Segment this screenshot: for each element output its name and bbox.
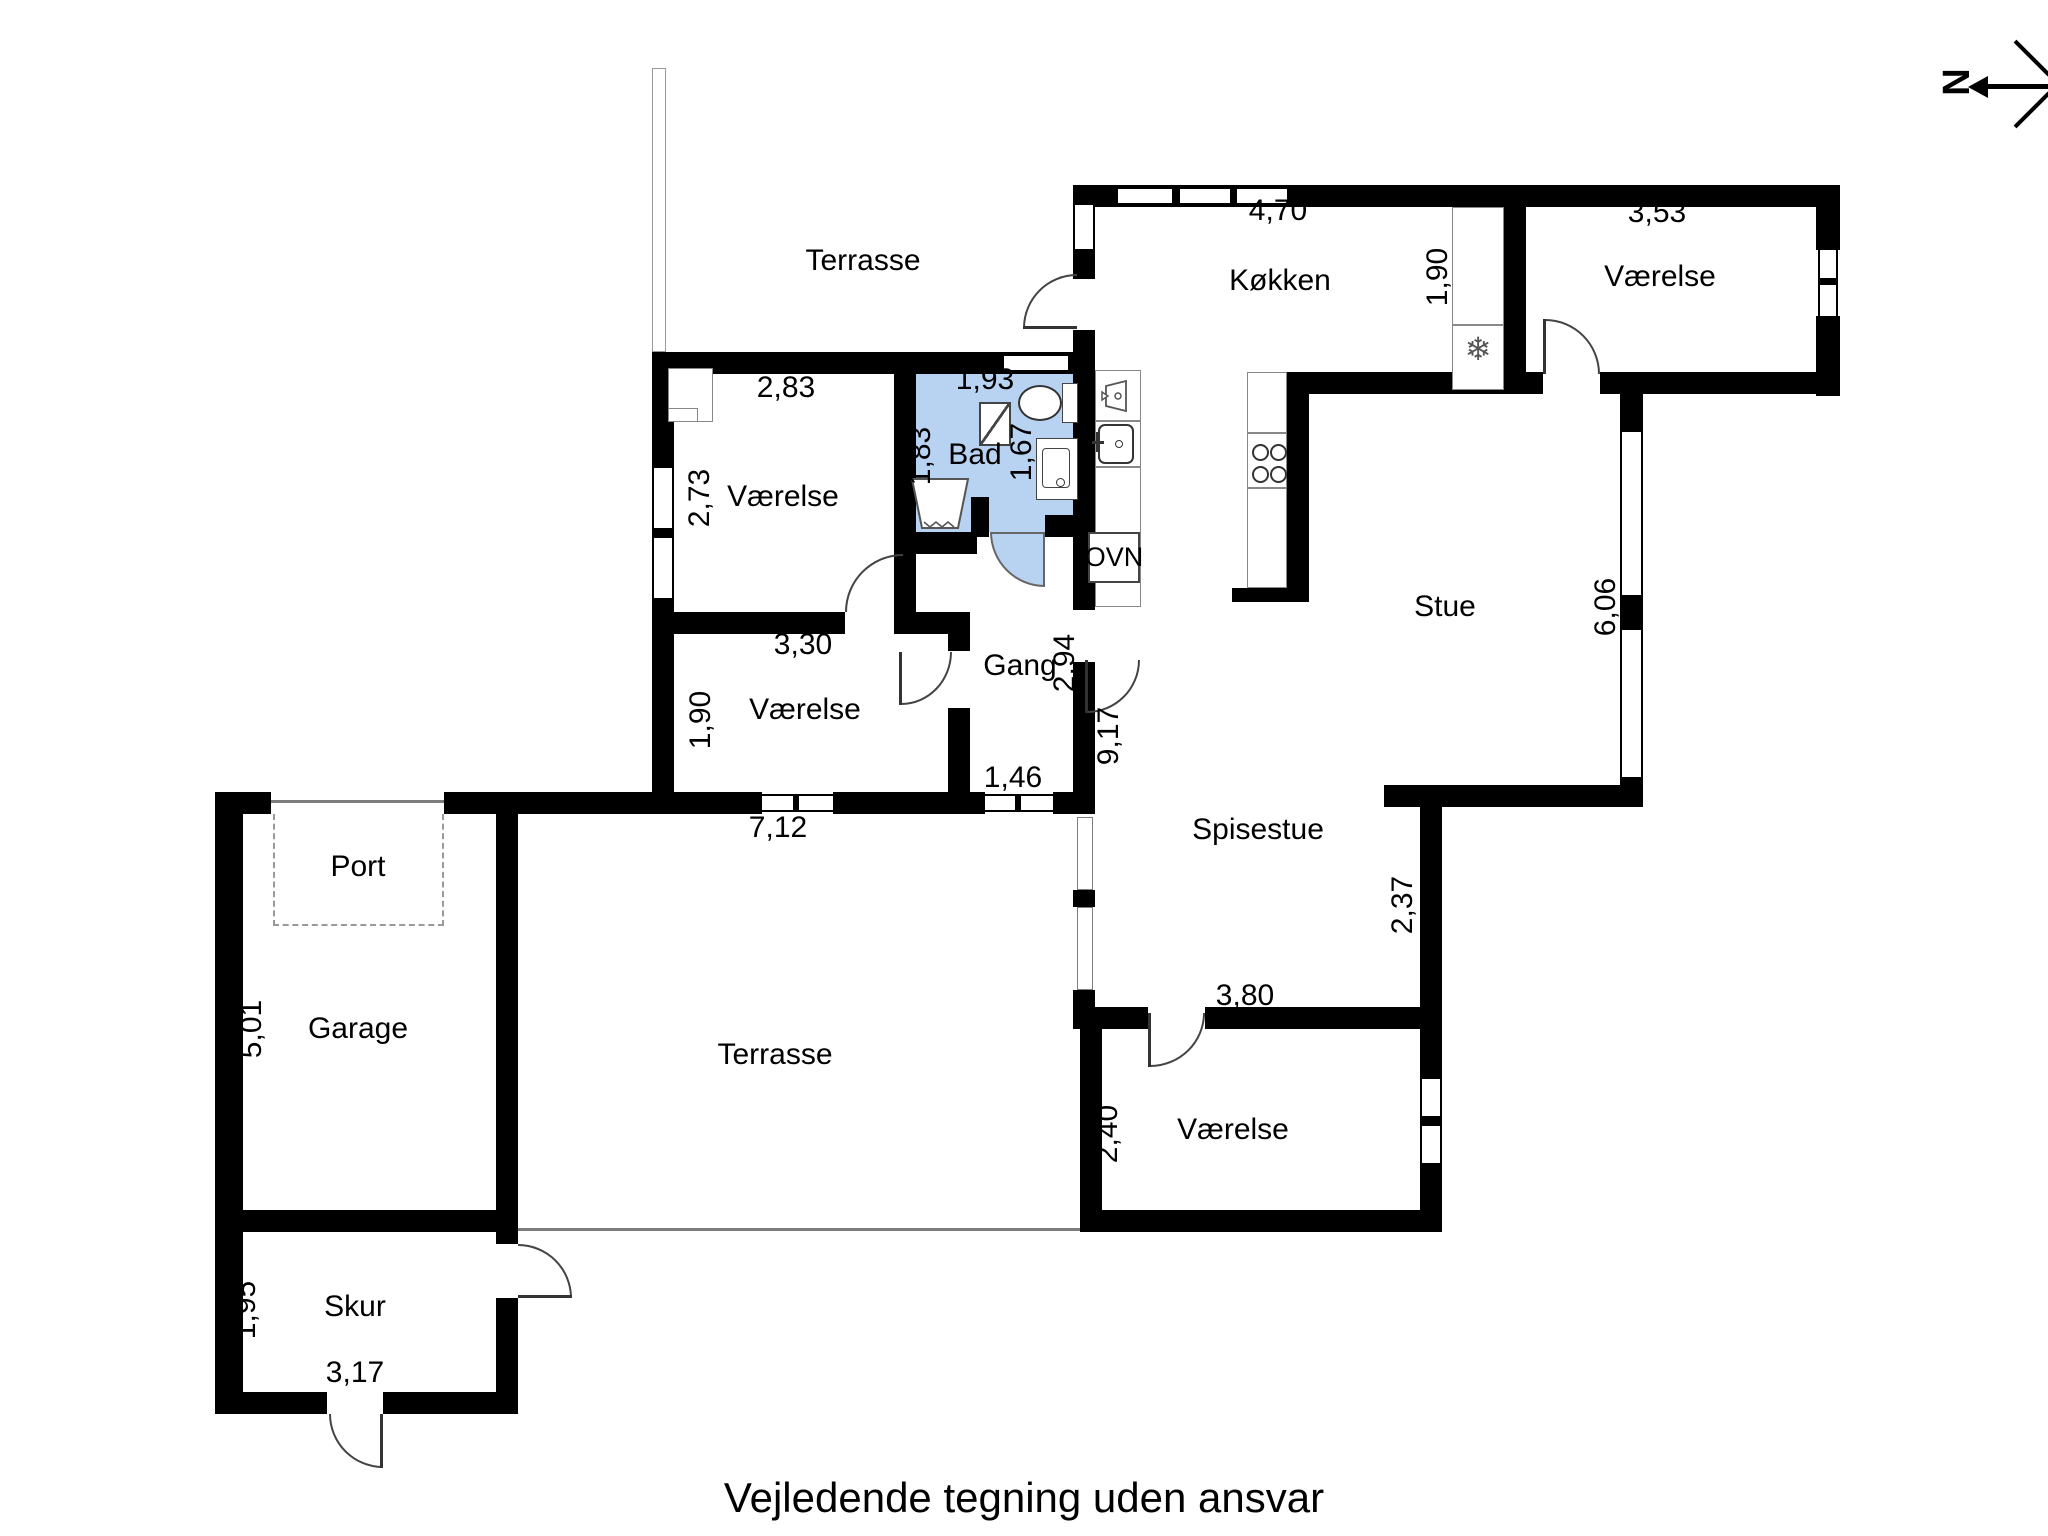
wall [1816, 185, 1840, 250]
oven-label: OVN [1085, 542, 1144, 573]
window [652, 538, 674, 598]
cooktop-burner-icon [1270, 466, 1287, 483]
dim-label: 3,17 [326, 1356, 384, 1390]
door-leaf [1543, 319, 1546, 374]
room-label-kokken: Køkken [1229, 264, 1331, 298]
closet-icon [668, 408, 698, 422]
door-arc [518, 1244, 572, 1298]
wall [971, 497, 989, 537]
door-leaf [518, 1295, 572, 1298]
window [1077, 817, 1093, 890]
wall [1816, 316, 1840, 396]
north-label: N [1936, 62, 1980, 102]
dim-label: 2,94 [1048, 634, 1082, 692]
door-leaf [380, 1414, 383, 1468]
oven-box: OVN [1088, 532, 1140, 583]
room-label-terrasse-s: Terrasse [717, 1038, 832, 1072]
toilet-tank-icon [1062, 383, 1078, 423]
room-label-vaerelse-nw: Værelse [727, 480, 839, 514]
dim-label: 1,90 [1421, 248, 1455, 306]
dim-label: 1,95 [229, 1281, 263, 1339]
window-mullion [793, 794, 799, 812]
dim-label: 2,40 [1091, 1105, 1125, 1163]
counter-divider [1095, 466, 1141, 468]
dim-label: 7,12 [749, 811, 807, 845]
dim-label: 3,30 [774, 628, 832, 662]
wall [894, 532, 977, 554]
door-arc [845, 554, 903, 612]
door-arc [1150, 1013, 1205, 1067]
kitchen-sink-drain-icon [1115, 440, 1123, 448]
wall [1420, 795, 1442, 1079]
north-arrow-barb [2014, 40, 2048, 77]
wall [1600, 372, 1840, 394]
garage-door-line [271, 800, 444, 803]
window [1073, 205, 1095, 249]
toilet-icon [1018, 385, 1062, 421]
wall [1053, 792, 1095, 814]
room-label-vaerelse-s: Værelse [1177, 1113, 1289, 1147]
wall [496, 792, 518, 1232]
cooktop-burner-icon [1252, 466, 1269, 483]
dim-label: 3,53 [1628, 196, 1686, 230]
wall [496, 1232, 518, 1244]
door-leaf [1148, 1013, 1151, 1067]
wall [1620, 595, 1643, 630]
dim-label: 1,93 [956, 363, 1014, 397]
window [1420, 1126, 1442, 1163]
door-arc [901, 652, 952, 705]
disclaimer-text: Vejledende tegning uden ansvar [724, 1474, 1324, 1522]
wall [1384, 785, 1643, 807]
door-arc [329, 1414, 383, 1468]
north-arrow-shaft [1986, 84, 2048, 89]
fridge-icon: ❄ [1458, 330, 1498, 374]
room-label-garage: Garage [308, 1012, 408, 1046]
wall [1504, 207, 1526, 394]
terrace-railing [652, 68, 666, 352]
hand-basin-icon [1100, 378, 1132, 416]
cooktop-burner-icon [1270, 444, 1287, 461]
dim-label: 1,46 [984, 761, 1042, 795]
door-leaf [1085, 660, 1088, 713]
door-arc [1545, 319, 1600, 374]
bathroom-door-swing [990, 532, 1045, 587]
wall [1232, 588, 1309, 602]
room-label-vaerelse-w: Værelse [749, 693, 861, 727]
window [1420, 1079, 1442, 1116]
window-mullion [1015, 794, 1021, 812]
room-label-spisestue: Spisestue [1192, 813, 1324, 847]
faucet-icon [1092, 441, 1104, 444]
counter-divider [1247, 487, 1287, 489]
window-mullion [1818, 278, 1838, 285]
window [1620, 630, 1643, 777]
north-arrow-barb [2014, 92, 2048, 129]
counter-divider [1095, 420, 1141, 422]
counter-divider [1247, 432, 1287, 434]
dim-label: 1,67 [1005, 423, 1039, 481]
room-label-terrasse-top: Terrasse [805, 244, 920, 278]
wall [1080, 1210, 1442, 1232]
dim-label: 1,83 [904, 427, 938, 485]
door-arc [1023, 274, 1077, 328]
washing-machine-knob-icon [1056, 478, 1065, 487]
wall [1287, 372, 1309, 600]
dim-label: 3,80 [1216, 979, 1274, 1013]
floor-plan-canvas: OVN ❄ Terrasse Køkken 4,70 1,90 Værelse … [0, 0, 2048, 1536]
door-arc [1087, 660, 1140, 713]
dim-label: 6,06 [1589, 578, 1623, 636]
cooktop-burner-icon [1252, 444, 1269, 461]
dim-label: 2,83 [757, 371, 815, 405]
wall [215, 1392, 327, 1414]
dim-label: 2,73 [683, 469, 717, 527]
counter-divider [1452, 324, 1504, 326]
window [1077, 907, 1093, 990]
room-label-bad: Bad [948, 438, 1001, 472]
room-label-skur: Skur [324, 1290, 386, 1324]
wall [496, 1298, 518, 1414]
door-leaf [899, 652, 902, 705]
wall [948, 708, 970, 792]
wall [215, 1210, 518, 1232]
wall [444, 792, 762, 814]
wall [1420, 1163, 1442, 1232]
window-mullion [1172, 187, 1180, 205]
room-label-stue: Stue [1414, 590, 1476, 624]
room-label-vaerelse-ne: Værelse [1604, 260, 1716, 294]
dim-label: 4,70 [1249, 194, 1307, 228]
room-label-gang: Gang [983, 649, 1056, 683]
window [652, 468, 674, 528]
dim-label: 1,90 [684, 691, 718, 749]
wall [833, 792, 985, 814]
door-leaf [1023, 326, 1077, 329]
window-mullion [1230, 187, 1237, 205]
wall [948, 634, 970, 651]
room-label-port: Port [330, 850, 385, 884]
wall [1620, 777, 1643, 807]
dim-label: 9,17 [1092, 707, 1126, 765]
window-mullion [1420, 1116, 1442, 1126]
dim-label: 2,37 [1386, 876, 1420, 934]
window-mullion [652, 528, 674, 538]
window [1620, 432, 1643, 595]
terrace-edge-line [518, 1228, 1080, 1231]
wall [1073, 890, 1095, 907]
dim-label: 5,01 [235, 1000, 269, 1058]
